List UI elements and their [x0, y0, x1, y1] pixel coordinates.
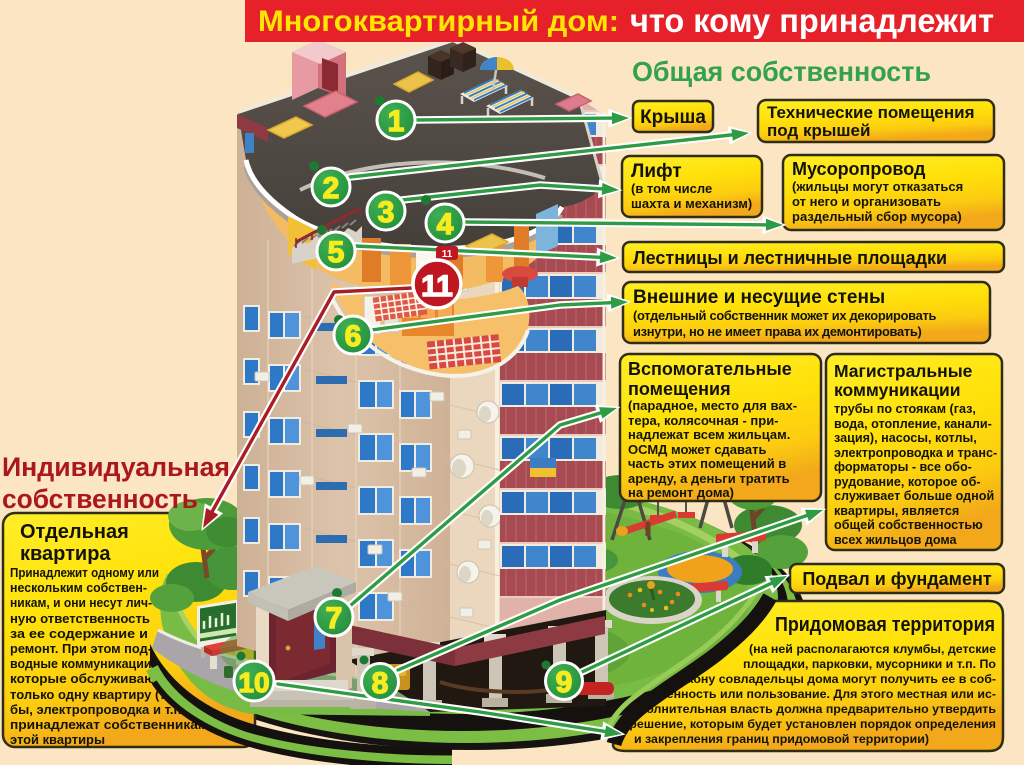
svg-text:служивает больше одной: служивает больше одной: [834, 489, 994, 503]
svg-text:Подвал и фундамент: Подвал и фундамент: [802, 569, 991, 589]
svg-text:Принадлежит одному или: Принадлежит одному или: [10, 565, 159, 580]
svg-text:тера, колясочная - при-: тера, колясочная - при-: [628, 413, 779, 428]
svg-text:10: 10: [238, 667, 269, 698]
svg-text:всех жильцов дома: всех жильцов дома: [834, 533, 958, 547]
svg-text:Технические помещения: Технические помещения: [767, 103, 975, 122]
svg-text:от него и организовать: от него и организовать: [792, 194, 941, 209]
svg-text:7: 7: [326, 602, 343, 635]
svg-text:ную ответственность: ную ответственность: [10, 611, 150, 626]
svg-text:трубы по стоякам (газ,: трубы по стоякам (газ,: [834, 402, 976, 416]
svg-text:бы, электропроводка и т.п.): бы, электропроводка и т.п.),: [10, 702, 193, 717]
svg-text:11: 11: [442, 249, 453, 260]
svg-text:Внешние и несущие стены: Внешние и несущие стены: [633, 287, 885, 308]
svg-text:рудование, которое об-: рудование, которое об-: [834, 475, 981, 489]
svg-text:площадки, парковки, мусорник: площадки, парковки, мусорники и т.п. По: [743, 657, 996, 671]
svg-text:6: 6: [345, 320, 362, 353]
svg-text:общей собственностью: общей собственностью: [834, 518, 983, 532]
svg-text:11: 11: [421, 270, 453, 303]
svg-text:шахта и механизм): шахта и механизм): [631, 196, 752, 211]
svg-text:часть этих помещений в: часть этих помещений в: [628, 456, 786, 471]
svg-text:полнительная власть должна пре: полнительная власть должна предварительн…: [639, 702, 997, 716]
svg-text:коммуникации: коммуникации: [834, 380, 960, 400]
svg-text:раздельный сбор мусора): раздельный сбор мусора): [792, 209, 962, 224]
svg-text:(на ней располагаются клумбы,: (на ней располагаются клумбы, детские: [749, 642, 996, 656]
svg-text:Многоквартирный дом:: Многоквартирный дом:: [258, 5, 619, 38]
svg-text:2: 2: [323, 172, 340, 205]
svg-text:ственность или пользование. Дл: ственность или пользование. Для этого ме…: [646, 687, 996, 701]
svg-text:под крышей: под крышей: [767, 121, 870, 140]
svg-text:вода, отопление, канали-: вода, отопление, канали-: [834, 417, 992, 431]
svg-text:водные коммуникации,: водные коммуникации,: [10, 656, 155, 671]
svg-text:3: 3: [378, 196, 395, 229]
svg-text:Вспомогательные: Вспомогательные: [628, 359, 792, 379]
svg-text:Лестницы и лестничные площадки: Лестницы и лестничные площадки: [633, 248, 947, 268]
svg-text:квартиры, является: квартиры, является: [834, 504, 959, 518]
svg-text:и закрепления границ придомово: и закрепления границ придомовой территор…: [634, 732, 929, 746]
svg-text:8: 8: [372, 667, 389, 700]
svg-text:решение, которым будет установ: решение, которым будет установлен порядо…: [629, 717, 996, 731]
svg-text:Лифт: Лифт: [631, 161, 682, 182]
svg-text:на ремонт дома): на ремонт дома): [628, 485, 734, 500]
svg-text:принадлежат собственникам: принадлежат собственникам: [10, 717, 208, 732]
svg-text:1: 1: [388, 105, 405, 138]
svg-text:никам, и они несут лич-: никам, и они несут лич-: [10, 595, 152, 610]
svg-text:что кому принадлежит: что кому принадлежит: [630, 2, 994, 39]
svg-text:Придомовая территория: Придомовая территория: [775, 614, 995, 636]
svg-text:квартира: квартира: [20, 543, 111, 565]
svg-text:закону совладельцы дома могут: закону совладельцы дома могут получить е…: [674, 672, 996, 686]
svg-text:Мусоропровод: Мусоропровод: [792, 159, 926, 179]
svg-text:собственность: собственность: [2, 484, 198, 514]
svg-text:этой квартиры: этой квартиры: [10, 732, 105, 747]
svg-text:форматоры - все обо-: форматоры - все обо-: [834, 460, 972, 474]
svg-text:(отдельный собственник может и: (отдельный собственник может их декориро…: [633, 308, 937, 323]
svg-text:зация), насосы, котлы,: зация), насосы, котлы,: [834, 431, 977, 445]
svg-text:9: 9: [556, 666, 573, 699]
svg-text:ОСМД может сдавать: ОСМД может сдавать: [628, 442, 766, 457]
svg-text:Крыша: Крыша: [640, 107, 706, 128]
svg-text:за ее содержание и: за ее содержание и: [10, 626, 148, 641]
svg-text:надлежат всем жильцам.: надлежат всем жильцам.: [628, 427, 790, 442]
svg-text:(жильцы могут отказаться: (жильцы могут отказаться: [792, 179, 963, 194]
svg-text:(парадное, место для вах-: (парадное, место для вах-: [628, 398, 797, 413]
svg-text:Общая собственность: Общая собственность: [632, 56, 931, 87]
svg-text:Магистральные: Магистральные: [834, 361, 973, 381]
svg-text:изнутри, но не имеет права их: изнутри, но не имеет права их демонтиров…: [633, 324, 921, 339]
svg-text:нескольким собствен-: нескольким собствен-: [10, 580, 147, 595]
svg-text:помещения: помещения: [628, 379, 731, 399]
svg-text:аренду, а деньги тратить: аренду, а деньги тратить: [628, 471, 790, 486]
svg-text:5: 5: [328, 236, 345, 269]
svg-text:которые обслуживают: которые обслуживают: [10, 671, 162, 686]
svg-text:электропроводка и транс-: электропроводка и транс-: [834, 446, 997, 460]
svg-text:4: 4: [437, 208, 454, 241]
svg-text:(в том числе: (в том числе: [631, 181, 712, 196]
svg-text:ремонт. При этом под-: ремонт. При этом под-: [10, 641, 152, 656]
svg-text:Индивидуальная: Индивидуальная: [2, 452, 230, 482]
svg-text:Отдельная: Отдельная: [20, 521, 129, 543]
